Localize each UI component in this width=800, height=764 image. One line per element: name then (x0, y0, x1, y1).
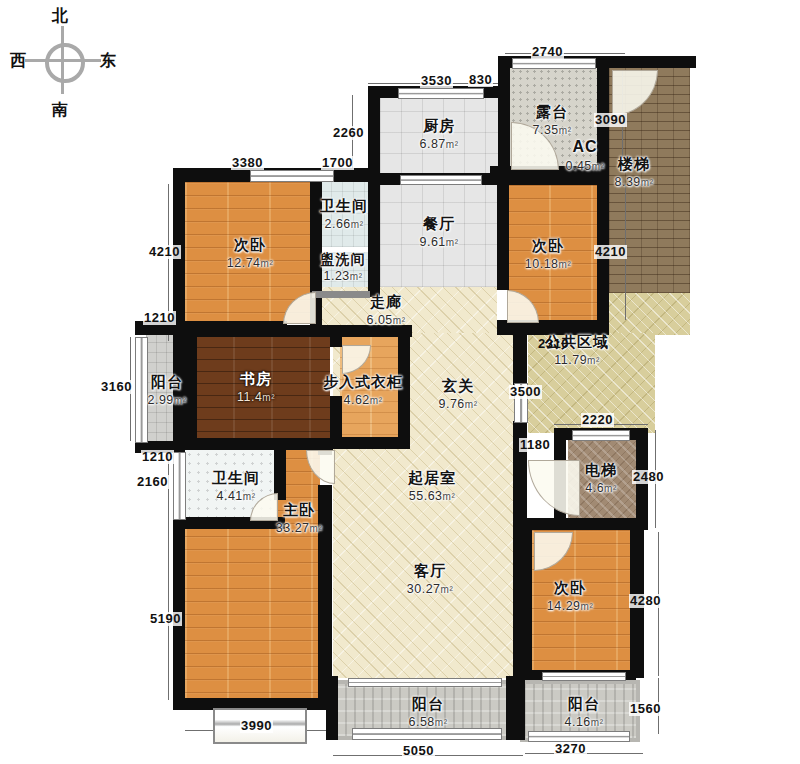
room-label-balcony-west: 阳台 2.99m² (136, 372, 198, 408)
window (542, 672, 626, 681)
room-floor-public-area-north (609, 293, 690, 335)
room-label-corridor: 走廊 6.05m² (350, 292, 422, 328)
dimension-label: 4210 (594, 245, 627, 259)
window (512, 58, 596, 69)
dimension-label: 2480 (632, 470, 665, 484)
dimension-label: 2220 (581, 413, 614, 427)
dimension-label: 3090 (594, 113, 627, 127)
wall (185, 438, 333, 450)
dimension-label: 3160 (100, 380, 133, 394)
dimension-label: 2310 (537, 337, 570, 351)
dimension-label: 3500 (509, 385, 542, 399)
dimension-label: 2260 (332, 126, 365, 140)
room-label-bedroom-nw: 次卧 12.74m² (212, 235, 288, 271)
wall (497, 185, 509, 290)
wall (330, 335, 342, 347)
compass-rose: 北 西 东 南 (8, 6, 120, 124)
room-label-balcony-s2: 阳台 4.16m² (550, 694, 618, 730)
room-label-stairs: 楼梯 8.39m² (598, 154, 670, 190)
room-label-balcony-s1: 阳台 6.58m² (394, 694, 462, 730)
compass-south-label: 南 (52, 100, 68, 121)
window (352, 728, 502, 740)
room-label-terrace: 露台 7.35m² (508, 102, 596, 138)
room-label-bedroom-se: 次卧 14.29m² (536, 578, 604, 614)
dimension-label: 4210 (148, 245, 181, 259)
window (250, 170, 334, 182)
wall (326, 676, 338, 740)
dimension-label: 1560 (629, 702, 662, 716)
dimension-label: 3380 (231, 156, 264, 170)
compass-west-label: 西 (10, 51, 26, 72)
dimension-label: 4280 (629, 594, 662, 608)
room-label-foyer: 玄关 9.76m² (425, 376, 491, 412)
floor-plan: 北 西 东 南 (0, 0, 800, 764)
room-label-study: 书房 11.4m² (220, 369, 292, 405)
dimension-label: 1180 (519, 438, 551, 452)
dimension-label: 3530 (420, 74, 453, 88)
compass-north-label: 北 (52, 6, 68, 27)
compass-circle-icon (45, 43, 85, 83)
window (398, 88, 484, 99)
compass-east-label: 东 (100, 51, 116, 72)
room-label-bath-top: 卫生间 2.66m² (312, 196, 376, 232)
room-label-closet: 步入式衣柜 4.62m² (316, 372, 410, 408)
wall (185, 325, 335, 337)
room-label-master: 主卧 33.27m² (266, 500, 332, 536)
window (173, 452, 186, 520)
dimension-label: 1210 (143, 311, 176, 325)
wall (513, 421, 527, 520)
room-label-living: 起居室 55.63m² (396, 468, 468, 504)
room-label-kitchen: 厨房 6.87m² (398, 116, 480, 152)
dimension-label: 3990 (240, 719, 273, 733)
window (572, 430, 630, 441)
room-label-elevator: 电梯 4.6m² (568, 460, 634, 496)
dimension-label: 1700 (321, 156, 354, 170)
wall (513, 530, 532, 680)
dimension-label: 2740 (531, 45, 564, 59)
room-label-washroom: 盥洗间 1.23m² (310, 250, 376, 284)
window (400, 175, 482, 185)
wall (506, 676, 525, 740)
room-label-dining: 餐厅 9.61m² (405, 214, 473, 250)
wall (513, 518, 648, 530)
dimension-label: 2160 (136, 475, 169, 489)
room-label-bath-mid: 卫生间 4.41m² (200, 468, 272, 504)
dimension-label: 1210 (141, 450, 174, 464)
room-label-bedroom-ne: 次卧 10.18m² (512, 236, 584, 272)
dimension-label: 5050 (402, 744, 435, 758)
dimension-label: 5190 (149, 612, 182, 626)
dimension-label: 3270 (554, 742, 587, 756)
dimension-label: 830 (468, 73, 493, 87)
wall (330, 437, 410, 449)
dimension-line (505, 53, 625, 54)
window (348, 678, 502, 687)
wall (513, 333, 527, 385)
room-label-parlor: 客厅 30.27m² (394, 561, 466, 597)
